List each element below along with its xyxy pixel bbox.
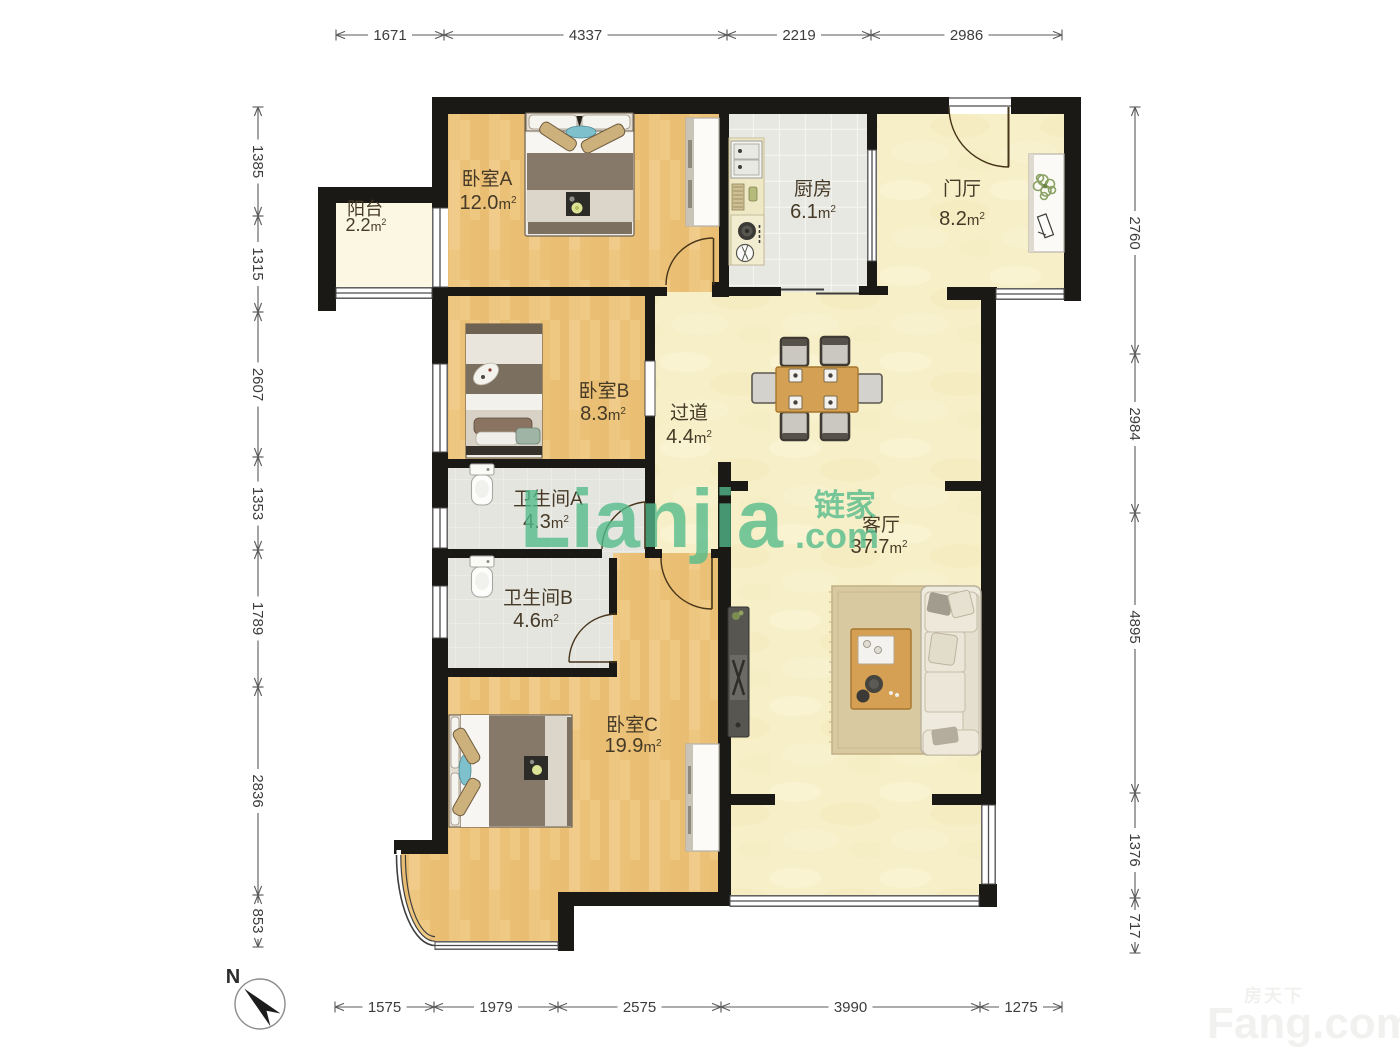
svg-text:717: 717 xyxy=(1126,913,1143,938)
svg-text:卫生间B: 卫生间B xyxy=(503,587,573,609)
svg-text:1979: 1979 xyxy=(479,999,512,1016)
svg-text:2219: 2219 xyxy=(782,27,815,44)
svg-text:卧室A: 卧室A xyxy=(462,168,513,190)
svg-text:1671: 1671 xyxy=(373,27,406,44)
svg-text:19.9m2: 19.9m2 xyxy=(605,735,662,757)
svg-text:4.6m2: 4.6m2 xyxy=(513,610,559,632)
svg-text:6.1m2: 6.1m2 xyxy=(790,201,836,223)
svg-text:4.4m2: 4.4m2 xyxy=(666,426,712,448)
svg-text:门厅: 门厅 xyxy=(943,178,981,200)
svg-text:8.3m2: 8.3m2 xyxy=(580,403,626,425)
svg-text:N: N xyxy=(226,966,240,988)
svg-text:1353: 1353 xyxy=(249,487,266,520)
svg-text:厨房: 厨房 xyxy=(794,178,832,200)
svg-text:1376: 1376 xyxy=(1126,833,1143,866)
svg-text:1315: 1315 xyxy=(249,247,266,280)
svg-text:2607: 2607 xyxy=(249,368,266,401)
svg-text:12.0m2: 12.0m2 xyxy=(460,192,517,214)
svg-text:2575: 2575 xyxy=(623,999,656,1016)
svg-text:1789: 1789 xyxy=(249,602,266,635)
svg-text:2984: 2984 xyxy=(1126,407,1143,440)
svg-text:2986: 2986 xyxy=(950,27,983,44)
svg-text:3990: 3990 xyxy=(834,999,867,1016)
svg-text:4895: 4895 xyxy=(1126,610,1143,643)
svg-text:1385: 1385 xyxy=(249,145,266,178)
svg-text:链家: 链家 xyxy=(814,488,876,523)
svg-text:853: 853 xyxy=(249,908,266,933)
svg-text:Fang.com: Fang.com xyxy=(1207,999,1400,1048)
svg-text:过道: 过道 xyxy=(670,402,708,424)
svg-text:8.2m2: 8.2m2 xyxy=(939,208,985,230)
svg-text:Lianjia: Lianjia xyxy=(520,472,784,565)
svg-text:1275: 1275 xyxy=(1004,999,1037,1016)
svg-text:4337: 4337 xyxy=(569,27,602,44)
svg-text:2760: 2760 xyxy=(1126,216,1143,249)
svg-text:卧室B: 卧室B xyxy=(579,380,630,402)
svg-text:卧室C: 卧室C xyxy=(606,714,658,736)
svg-text:1575: 1575 xyxy=(368,999,401,1016)
svg-text:2836: 2836 xyxy=(249,774,266,807)
